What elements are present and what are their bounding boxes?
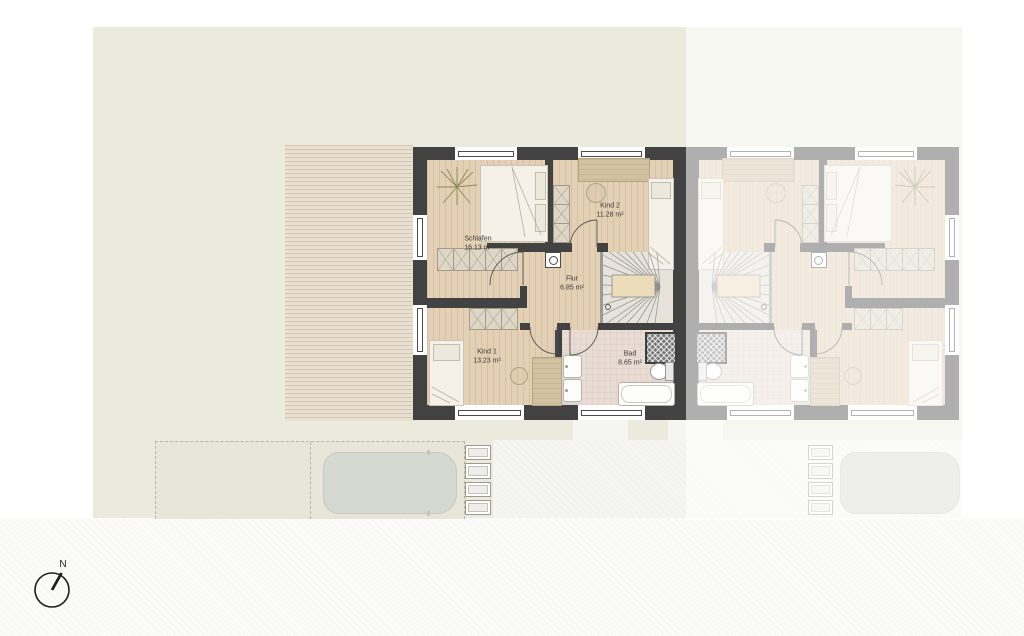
pillow [433, 344, 460, 361]
room-label-kind1: Kind 1 13.23 m² [473, 348, 501, 366]
room-name: Kind 1 [473, 348, 501, 357]
room-label-kind2: Kind 2 11.28 m² [596, 202, 623, 220]
room-name: Flur [560, 275, 584, 284]
window-bottom-2 [578, 405, 645, 420]
compass-north-label: N [59, 559, 66, 570]
wall-bath-north [598, 323, 673, 330]
storage-box [465, 500, 491, 515]
wardrobe-cell [553, 223, 570, 243]
floor-plan-left-unit: Schlafen 16.13 m² Kind 2 11.28 m² Flur 6… [413, 147, 686, 420]
wardrobe-cell [437, 248, 454, 271]
single-bed-kind2 [648, 178, 674, 270]
window-pane [417, 308, 423, 352]
window-left-1 [413, 215, 427, 260]
desk-kind2 [578, 158, 650, 182]
pillow [535, 172, 546, 200]
toilet-tank [665, 362, 674, 381]
compass: N [28, 556, 80, 612]
fade-overlay [686, 27, 962, 520]
wall-schlafen-kind1 [427, 298, 527, 308]
window-pane [458, 410, 521, 416]
car-mirror [427, 450, 430, 455]
room-area: 13.23 m² [473, 357, 501, 366]
entrance-walkway-left [573, 420, 628, 442]
window-pane [581, 151, 642, 157]
single-bed-kind1 [429, 340, 464, 406]
chair-kind2 [586, 183, 606, 203]
wardrobe-kind1 [470, 308, 518, 330]
desk-kind1 [532, 357, 562, 406]
car-mirror [427, 511, 430, 516]
chair-kind1 [510, 367, 528, 385]
sink [563, 379, 582, 402]
bathtub [618, 382, 675, 406]
flur-fixture [545, 252, 561, 268]
storage-box [465, 463, 491, 478]
wardrobe-cell [553, 185, 570, 205]
room-label-flur: Flur 6.85 m² [560, 275, 584, 293]
wardrobe-kind2 [553, 186, 570, 243]
pillow [535, 204, 546, 232]
bath-vanity [562, 352, 581, 404]
wardrobe-cell [501, 248, 518, 271]
parking-divider-line [310, 442, 311, 519]
room-area: 16.13 m² [464, 244, 492, 253]
storage-box [465, 445, 491, 460]
stair-rail [600, 252, 603, 323]
pillow [651, 182, 671, 199]
wardrobe-cell [553, 204, 570, 224]
street-area [0, 518, 1024, 636]
double-bed [480, 165, 548, 242]
room-name: Kind 2 [596, 202, 623, 211]
wardrobe-cell [469, 308, 486, 330]
room-name: Schlafen [464, 235, 492, 244]
car-left [323, 452, 457, 514]
window-top-1 [455, 147, 517, 160]
shower [645, 332, 677, 364]
wall-bottom [413, 405, 686, 420]
room-name: Bad [618, 350, 642, 359]
window-bottom-1 [455, 405, 524, 420]
window-pane [458, 151, 514, 157]
room-label-bad: Bad 8.65 m² [618, 350, 642, 368]
wall-flur-south-b [557, 323, 570, 330]
wardrobe-cell [485, 308, 502, 330]
wall-flur-south-a [520, 323, 530, 330]
wardrobe-cell [501, 308, 518, 330]
window-pane [581, 410, 642, 416]
window-left-2 [413, 305, 427, 355]
room-area: 11.28 m² [596, 211, 623, 220]
wall-left [413, 147, 427, 420]
terrace [285, 145, 413, 421]
wall-party [673, 147, 686, 420]
room-area: 8.65 m² [618, 359, 642, 368]
sink [563, 355, 582, 378]
wall-flur-north-stub [597, 243, 608, 252]
site-plan: Schlafen 16.13 m² Kind 2 11.28 m² Flur 6… [0, 0, 1024, 636]
room-label-schlafen: Schlafen 16.13 m² [464, 235, 492, 253]
room-area: 6.85 m² [560, 284, 584, 293]
compass-needle [52, 573, 62, 590]
storage-boxes-left [465, 445, 491, 515]
window-pane [417, 218, 423, 257]
storage-box [465, 482, 491, 497]
